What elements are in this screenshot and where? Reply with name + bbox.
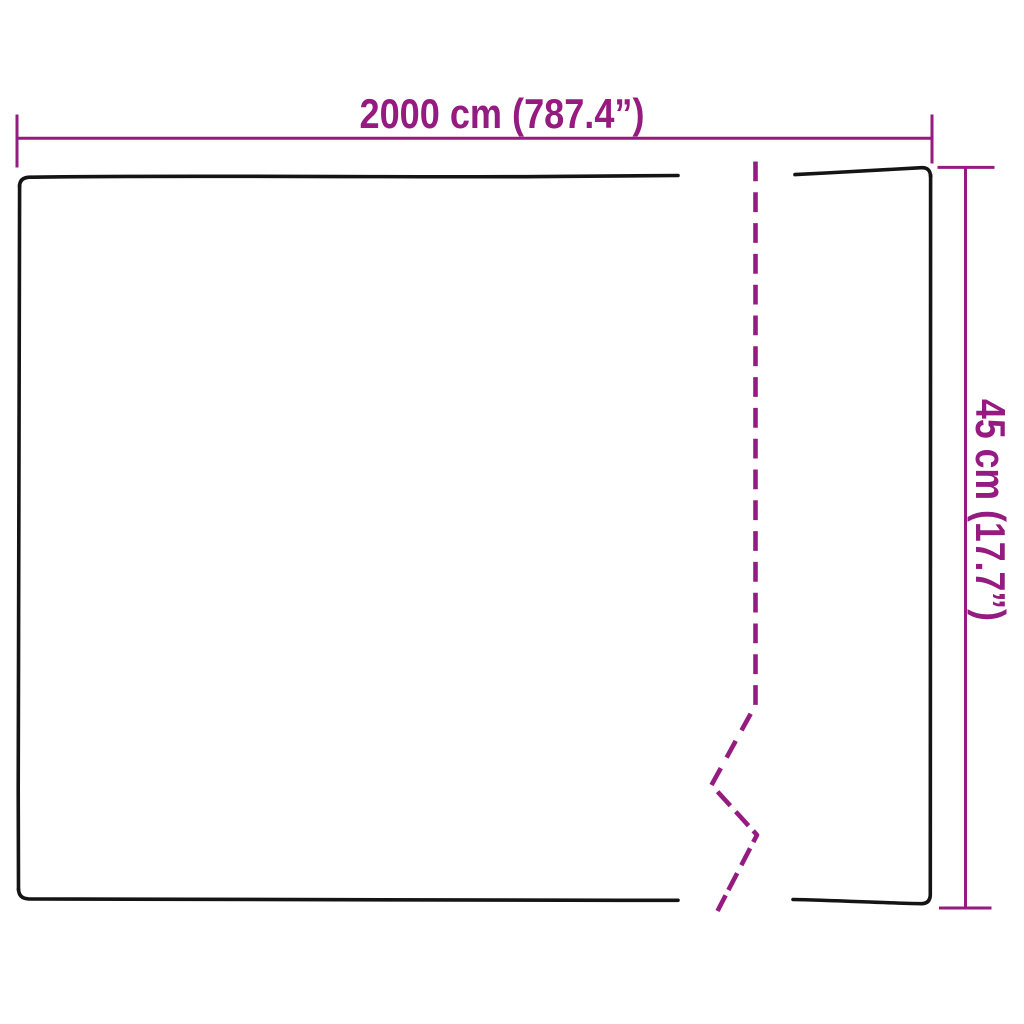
svg-text:2000 cm (787.4”): 2000 cm (787.4”) [360,90,645,137]
svg-text:45 cm (17.7”): 45 cm (17.7”) [967,399,1014,621]
